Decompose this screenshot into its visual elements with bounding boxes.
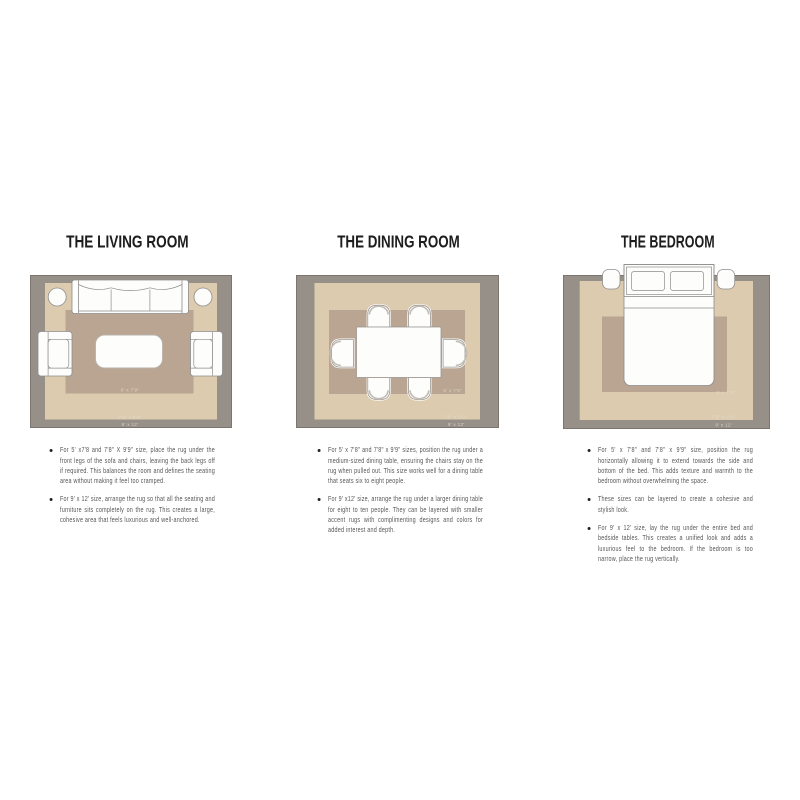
svg-text:9' x 12': 9' x 12' [715, 423, 732, 428]
svg-text:7'8" x 9'9": 7'8" x 9'9" [118, 415, 141, 420]
svg-text:9' x 12': 9' x 12' [448, 422, 465, 427]
svg-text:THE LIVING ROOM: THE LIVING ROOM [66, 232, 189, 252]
svg-text:7'8" x 9'9": 7'8" x 9'9" [444, 415, 467, 420]
svg-text:9' x 12': 9' x 12' [121, 422, 138, 427]
svg-text:5' x 7'8": 5' x 7'8" [716, 390, 735, 395]
svg-text:7'8" x 9'9": 7'8" x 9'9" [712, 415, 735, 420]
svg-text:5' x 7'8": 5' x 7'8" [443, 388, 462, 393]
svg-text:THE BEDROOM: THE BEDROOM [621, 232, 715, 252]
svg-text:THE DINING ROOM: THE DINING ROOM [337, 232, 460, 252]
svg-text:6' x 7'9": 6' x 7'9" [120, 388, 139, 393]
